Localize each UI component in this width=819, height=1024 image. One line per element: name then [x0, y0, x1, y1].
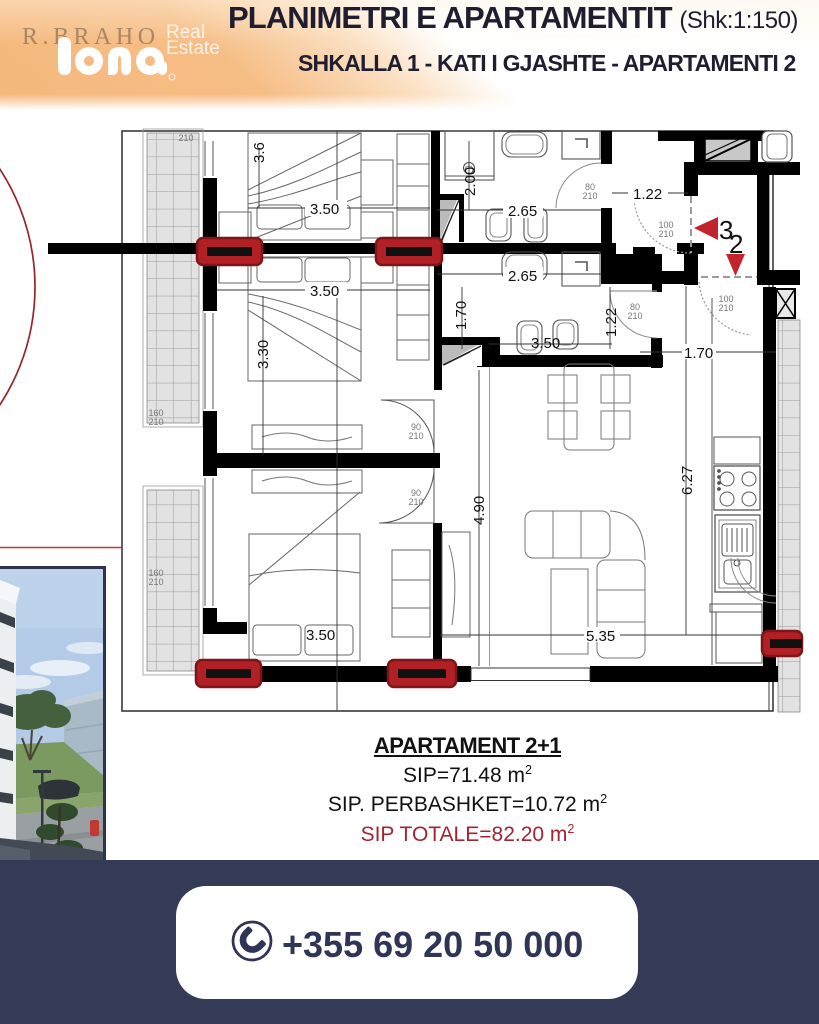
- svg-text:210: 210: [718, 303, 733, 313]
- svg-text:3.50: 3.50: [310, 283, 339, 300]
- svg-text:1.22: 1.22: [633, 186, 662, 203]
- svg-text:3.6: 3.6: [251, 142, 268, 163]
- svg-text:210: 210: [148, 417, 163, 427]
- svg-text:3.50: 3.50: [306, 627, 335, 644]
- svg-text:210: 210: [627, 311, 642, 321]
- svg-text:4.90: 4.90: [471, 496, 488, 525]
- svg-text:3.50: 3.50: [310, 201, 339, 218]
- svg-text:2.00: 2.00: [462, 167, 479, 196]
- svg-text:1.22: 1.22: [603, 308, 620, 337]
- svg-text:210: 210: [408, 497, 423, 507]
- svg-text:3.30: 3.30: [255, 340, 272, 369]
- svg-text:210: 210: [148, 577, 163, 587]
- svg-text:2.65: 2.65: [508, 203, 537, 220]
- svg-text:210: 210: [658, 229, 673, 239]
- svg-text:2: 2: [729, 229, 743, 259]
- svg-text:2.65: 2.65: [508, 268, 537, 285]
- svg-text:1.70: 1.70: [453, 301, 470, 330]
- svg-text:210: 210: [178, 133, 193, 143]
- svg-text:210: 210: [582, 191, 597, 201]
- svg-text:1.70: 1.70: [684, 345, 713, 362]
- svg-text:210: 210: [408, 431, 423, 441]
- svg-text:6.27: 6.27: [679, 466, 696, 495]
- svg-text:3.50: 3.50: [531, 335, 560, 352]
- svg-text:5.35: 5.35: [586, 628, 615, 645]
